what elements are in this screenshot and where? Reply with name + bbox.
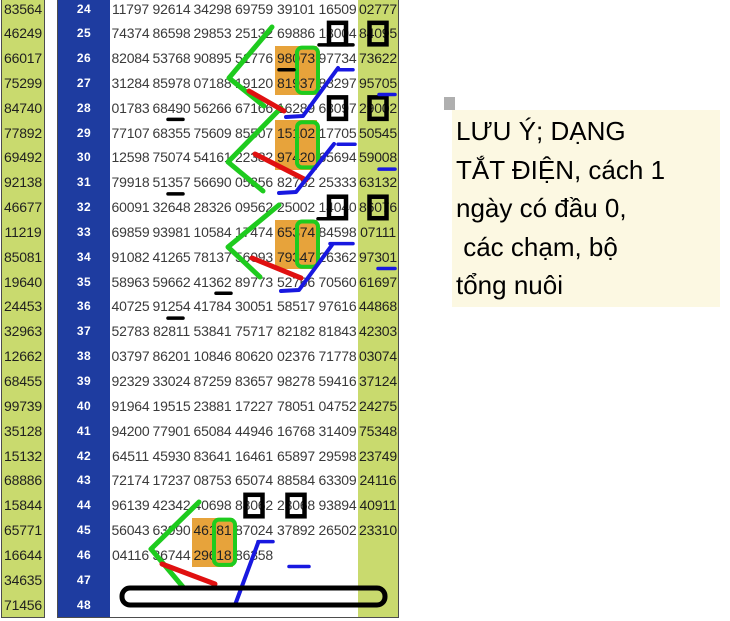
number-cell[interactable]: 72174 xyxy=(110,468,152,494)
row-header[interactable]: 35 xyxy=(57,269,111,295)
number-cell[interactable]: 84598 xyxy=(317,220,359,246)
number-cell[interactable]: 90895 xyxy=(192,46,234,72)
left-series-cell[interactable]: 11219 xyxy=(1,220,45,246)
note-line: LƯU Ý; DẠNG xyxy=(456,112,720,151)
number-cell[interactable]: 75717 xyxy=(233,319,276,345)
number-cell[interactable]: 04116 xyxy=(110,542,152,568)
number-cell[interactable]: 96139 xyxy=(110,493,152,519)
number-cell[interactable] xyxy=(233,592,276,618)
number-cell[interactable]: 88584 xyxy=(275,468,318,494)
number-cell[interactable]: 32648 xyxy=(151,195,193,221)
number-cell[interactable]: 17237 xyxy=(151,468,193,494)
number-cell[interactable]: 93981 xyxy=(151,220,193,246)
right-series-cell[interactable]: 75348 xyxy=(358,418,399,444)
number-cell[interactable]: 82084 xyxy=(110,46,152,72)
number-cell[interactable]: 28326 xyxy=(192,195,234,221)
number-cell[interactable]: 19120 xyxy=(233,71,276,97)
number-cell[interactable]: 23068 xyxy=(275,493,318,519)
left-series-cell[interactable]: 77892 xyxy=(1,120,45,146)
left-series-cell[interactable]: 24453 xyxy=(1,294,45,320)
number-cell[interactable]: 42342 xyxy=(151,493,193,519)
number-cell[interactable]: 33024 xyxy=(151,369,193,395)
gray-marker xyxy=(444,97,455,110)
number-cell[interactable]: 86201 xyxy=(151,344,193,370)
right-series-cell[interactable]: 40911 xyxy=(358,493,399,519)
left-series-cell[interactable]: 32963 xyxy=(1,319,45,345)
number-cell[interactable]: 37892 xyxy=(275,518,318,544)
number-cell[interactable]: 22382 xyxy=(233,145,276,171)
row-header[interactable]: 32 xyxy=(57,195,111,221)
number-cell[interactable]: 29853 xyxy=(192,21,234,47)
number-cell[interactable]: 97420 xyxy=(275,145,318,171)
number-cell[interactable]: 63309 xyxy=(317,468,359,494)
number-cell[interactable]: 83657 xyxy=(233,369,276,395)
number-cell[interactable]: 26502 xyxy=(317,518,359,544)
left-series-cell[interactable]: 84740 xyxy=(1,95,45,121)
left-series-cell[interactable]: 68455 xyxy=(1,369,45,395)
number-cell[interactable]: 86598 xyxy=(151,21,193,47)
number-cell[interactable]: 29598 xyxy=(317,443,359,469)
number-cell[interactable]: 29618 xyxy=(192,542,234,568)
number-cell[interactable]: 97734 xyxy=(317,46,359,72)
right-series-cell[interactable]: 73622 xyxy=(358,46,399,72)
number-cell[interactable]: 63990 xyxy=(151,518,193,544)
number-cell[interactable]: 16461 xyxy=(233,443,276,469)
number-cell[interactable]: 10584 xyxy=(192,220,234,246)
right-series-cell[interactable]: 63132 xyxy=(358,170,399,196)
row-header[interactable]: 39 xyxy=(57,369,111,395)
number-cell[interactable]: 53841 xyxy=(192,319,234,345)
right-series-cell[interactable]: 03074 xyxy=(358,344,399,370)
left-series-cell[interactable]: 15132 xyxy=(1,443,45,469)
row-header[interactable]: 42 xyxy=(57,443,111,469)
number-cell[interactable]: 94200 xyxy=(110,418,152,444)
row-header[interactable]: 48 xyxy=(57,592,111,618)
row-header[interactable]: 36 xyxy=(57,294,111,320)
number-cell[interactable] xyxy=(110,567,152,593)
number-cell[interactable]: 10846 xyxy=(192,344,234,370)
number-cell[interactable]: 51776 xyxy=(233,46,276,72)
number-cell[interactable]: 41265 xyxy=(151,244,193,270)
number-cell[interactable]: 64511 xyxy=(110,443,152,469)
number-cell[interactable]: 34298 xyxy=(192,0,234,22)
number-cell[interactable]: 91964 xyxy=(110,393,152,419)
number-cell[interactable]: 81937 xyxy=(275,71,318,97)
number-cell[interactable]: 82182 xyxy=(275,319,318,345)
number-cell[interactable]: 46181 xyxy=(192,518,234,544)
number-cell[interactable]: 40725 xyxy=(110,294,152,320)
number-cell[interactable]: 65897 xyxy=(275,443,318,469)
number-cell[interactable]: 98278 xyxy=(275,369,318,395)
number-cell[interactable]: 51357 xyxy=(151,170,193,196)
number-cell[interactable]: 91254 xyxy=(151,294,193,320)
number-cell[interactable]: 04752 xyxy=(317,393,359,419)
left-series-cell[interactable]: 19640 xyxy=(1,269,45,295)
number-cell[interactable]: 87024 xyxy=(233,518,276,544)
right-series-cell[interactable]: 50545 xyxy=(358,120,399,146)
number-cell[interactable]: 41362 xyxy=(192,269,234,295)
number-cell[interactable]: 93894 xyxy=(317,493,359,519)
number-cell[interactable] xyxy=(275,567,318,593)
number-cell[interactable]: 67166 xyxy=(233,95,276,121)
number-cell[interactable]: 68355 xyxy=(151,120,193,146)
number-cell[interactable] xyxy=(192,567,234,593)
number-cell[interactable]: 85978 xyxy=(151,71,193,97)
right-series-cell[interactable]: 59008 xyxy=(358,145,399,171)
left-series-cell[interactable]: 83564 xyxy=(1,0,45,22)
number-cell[interactable]: 26362 xyxy=(317,244,359,270)
number-cell[interactable]: 40698 xyxy=(192,493,234,519)
row-header[interactable]: 29 xyxy=(57,120,111,146)
left-series-cell[interactable]: 66017 xyxy=(1,46,45,72)
left-series-cell[interactable]: 75299 xyxy=(1,71,45,97)
row-header[interactable]: 47 xyxy=(57,567,111,593)
left-series-cell[interactable]: 69492 xyxy=(1,145,45,171)
row-header[interactable]: 28 xyxy=(57,95,111,121)
row-header[interactable]: 33 xyxy=(57,220,111,246)
row-header[interactable]: 31 xyxy=(57,170,111,196)
number-cell[interactable]: 23881 xyxy=(192,393,234,419)
left-series-cell[interactable]: 92138 xyxy=(1,170,45,196)
number-cell[interactable]: 69886 xyxy=(275,21,318,47)
number-cell[interactable]: 08753 xyxy=(192,468,234,494)
right-series-cell[interactable]: 02777 xyxy=(358,0,399,22)
right-series-cell[interactable]: 24275 xyxy=(358,393,399,419)
right-series-cell[interactable]: 23310 xyxy=(358,518,399,544)
number-cell[interactable]: 53768 xyxy=(151,46,193,72)
row-header[interactable]: 37 xyxy=(57,319,111,345)
number-cell[interactable]: 78137 xyxy=(192,244,234,270)
number-cell[interactable]: 75074 xyxy=(151,145,193,171)
number-cell[interactable]: 58963 xyxy=(110,269,152,295)
number-cell[interactable]: 69759 xyxy=(233,0,276,22)
number-cell[interactable] xyxy=(110,592,152,618)
number-cell[interactable]: 16509 xyxy=(317,0,359,22)
number-cell[interactable]: 86358 xyxy=(233,542,276,568)
left-series-cell[interactable]: 46677 xyxy=(1,195,45,221)
number-cell[interactable]: 82782 xyxy=(275,170,318,196)
number-cell[interactable]: 59416 xyxy=(317,369,359,395)
number-cell[interactable]: 92329 xyxy=(110,369,152,395)
right-series-cell[interactable]: 84095 xyxy=(358,21,399,47)
right-series-cell[interactable]: 29002 xyxy=(358,95,399,121)
left-series-cell[interactable]: 46249 xyxy=(1,21,45,47)
number-cell[interactable] xyxy=(317,567,359,593)
row-header[interactable]: 34 xyxy=(57,244,111,270)
row-header[interactable]: 44 xyxy=(57,493,111,519)
number-cell[interactable]: 19515 xyxy=(151,393,193,419)
right-series-cell[interactable]: 42303 xyxy=(358,319,399,345)
number-cell[interactable]: 65074 xyxy=(233,468,276,494)
number-cell[interactable]: 91082 xyxy=(110,244,152,270)
number-cell[interactable]: 58517 xyxy=(275,294,318,320)
number-cell[interactable]: 16289 xyxy=(275,95,318,121)
right-series-cell[interactable]: 37124 xyxy=(358,369,399,395)
row-header[interactable]: 45 xyxy=(57,518,111,544)
number-cell[interactable]: 88297 xyxy=(317,71,359,97)
left-series-cell[interactable]: 15844 xyxy=(1,493,45,519)
number-cell[interactable]: 16768 xyxy=(275,418,318,444)
number-cell[interactable]: 87259 xyxy=(192,369,234,395)
number-cell[interactable]: 65374 xyxy=(275,220,318,246)
number-cell[interactable]: 17705 xyxy=(317,120,359,146)
row-header[interactable]: 25 xyxy=(57,21,111,47)
number-cell[interactable] xyxy=(233,567,276,593)
number-cell[interactable]: 75609 xyxy=(192,120,234,146)
number-cell[interactable]: 79918 xyxy=(110,170,152,196)
right-series-cell[interactable]: 95705 xyxy=(358,71,399,97)
left-series-cell[interactable]: 68886 xyxy=(1,468,45,494)
number-cell[interactable] xyxy=(317,542,359,568)
number-cell[interactable]: 88062 xyxy=(233,493,276,519)
right-series-cell[interactable] xyxy=(358,592,399,618)
number-cell[interactable]: 79347 xyxy=(275,244,318,270)
number-cell[interactable]: 82811 xyxy=(151,319,193,345)
number-cell[interactable]: 12598 xyxy=(110,145,152,171)
right-series-cell[interactable]: 23749 xyxy=(358,443,399,469)
number-cell[interactable]: 25132 xyxy=(233,21,276,47)
row-header[interactable]: 27 xyxy=(57,71,111,97)
number-cell[interactable]: 14040 xyxy=(317,195,359,221)
number-cell[interactable]: 60091 xyxy=(110,195,152,221)
number-cell[interactable]: 44946 xyxy=(233,418,276,444)
left-series-cell[interactable]: 16644 xyxy=(1,542,45,568)
left-series-cell[interactable]: 12662 xyxy=(1,344,45,370)
number-cell[interactable]: 03797 xyxy=(110,344,152,370)
row-header[interactable]: 30 xyxy=(57,145,111,171)
number-cell[interactable]: 97616 xyxy=(317,294,359,320)
number-cell[interactable]: 30051 xyxy=(233,294,276,320)
row-header[interactable]: 43 xyxy=(57,468,111,494)
number-cell[interactable]: 41784 xyxy=(192,294,234,320)
number-cell[interactable]: 31284 xyxy=(110,71,152,97)
number-cell[interactable]: 39101 xyxy=(275,0,318,22)
number-cell[interactable]: 13004 xyxy=(317,21,359,47)
number-cell[interactable]: 98073 xyxy=(275,46,318,72)
note-box: LƯU Ý; DẠNG TẮT ĐIỆN, cách 1 ngày có đầu… xyxy=(452,110,720,307)
number-cell[interactable]: 31409 xyxy=(317,418,359,444)
number-cell[interactable] xyxy=(275,542,318,568)
number-cell[interactable]: 81843 xyxy=(317,319,359,345)
number-cell[interactable]: 54161 xyxy=(192,145,234,171)
number-cell[interactable]: 15102 xyxy=(275,120,318,146)
number-cell[interactable] xyxy=(275,592,318,618)
left-series-cell[interactable]: 34635 xyxy=(1,567,45,593)
left-series-cell[interactable]: 65771 xyxy=(1,518,45,544)
note-line: các chạm, bộ xyxy=(456,228,720,267)
number-cell[interactable]: 77901 xyxy=(151,418,193,444)
number-cell[interactable]: 52766 xyxy=(275,269,318,295)
number-cell[interactable]: 02376 xyxy=(275,344,318,370)
left-series-cell[interactable]: 35128 xyxy=(1,418,45,444)
annotated-spreadsheet: 8356424117979261434298697593910116509027… xyxy=(0,0,730,621)
number-cell[interactable]: 11797 xyxy=(110,0,152,22)
number-cell[interactable]: 89773 xyxy=(233,269,276,295)
left-series-cell[interactable]: 85081 xyxy=(1,244,45,270)
number-cell[interactable]: 45930 xyxy=(151,443,193,469)
note-line: tổng nuôi xyxy=(456,266,720,305)
number-cell[interactable]: 01783 xyxy=(110,95,152,121)
number-cell[interactable]: 52783 xyxy=(110,319,152,345)
number-cell[interactable] xyxy=(317,592,359,618)
number-cell[interactable]: 59662 xyxy=(151,269,193,295)
right-series-cell[interactable]: 24116 xyxy=(358,468,399,494)
number-cell[interactable]: 05356 xyxy=(233,170,276,196)
note-line: TẮT ĐIỆN, cách 1 xyxy=(456,151,720,190)
row-header[interactable]: 40 xyxy=(57,393,111,419)
number-cell[interactable]: 80620 xyxy=(233,344,276,370)
number-cell[interactable]: 74374 xyxy=(110,21,152,47)
number-cell[interactable]: 36744 xyxy=(151,542,193,568)
right-series-cell[interactable]: 07111 xyxy=(358,220,399,246)
row-header[interactable]: 38 xyxy=(57,344,111,370)
number-cell[interactable]: 71778 xyxy=(317,344,359,370)
number-cell[interactable]: 09562 xyxy=(233,195,276,221)
number-cell[interactable]: 56093 xyxy=(233,244,276,270)
number-cell[interactable]: 85507 xyxy=(233,120,276,146)
row-header[interactable]: 41 xyxy=(57,418,111,444)
number-cell[interactable]: 69859 xyxy=(110,220,152,246)
right-series-cell[interactable]: 44868 xyxy=(358,294,399,320)
number-cell[interactable]: 25333 xyxy=(317,170,359,196)
number-cell[interactable]: 25002 xyxy=(275,195,318,221)
right-series-cell[interactable] xyxy=(358,567,399,593)
number-cell[interactable]: 68490 xyxy=(151,95,193,121)
left-series-cell[interactable]: 71456 xyxy=(1,592,45,618)
number-cell[interactable]: 65084 xyxy=(192,418,234,444)
number-cell[interactable]: 17474 xyxy=(233,220,276,246)
number-cell[interactable]: 70560 xyxy=(317,269,359,295)
row-header[interactable]: 46 xyxy=(57,542,111,568)
number-cell[interactable]: 65694 xyxy=(317,145,359,171)
right-series-cell[interactable] xyxy=(358,542,399,568)
number-cell[interactable]: 63097 xyxy=(317,95,359,121)
number-cell[interactable]: 56690 xyxy=(192,170,234,196)
row-header[interactable]: 24 xyxy=(57,0,111,22)
number-cell[interactable] xyxy=(151,592,193,618)
number-cell[interactable]: 07188 xyxy=(192,71,234,97)
left-series-cell[interactable]: 99739 xyxy=(1,393,45,419)
number-cell[interactable]: 92614 xyxy=(151,0,193,22)
number-cell[interactable]: 83641 xyxy=(192,443,234,469)
number-cell[interactable] xyxy=(192,592,234,618)
row-header[interactable]: 26 xyxy=(57,46,111,72)
number-cell[interactable]: 78051 xyxy=(275,393,318,419)
number-cell[interactable]: 17227 xyxy=(233,393,276,419)
right-series-cell[interactable]: 61697 xyxy=(358,269,399,295)
number-cell[interactable] xyxy=(151,567,193,593)
note-line: ngày có đầu 0, xyxy=(456,189,720,228)
number-cell[interactable]: 56043 xyxy=(110,518,152,544)
number-cell[interactable]: 56266 xyxy=(192,95,234,121)
right-series-cell[interactable]: 97301 xyxy=(358,244,399,270)
number-cell[interactable]: 77107 xyxy=(110,120,152,146)
right-series-cell[interactable]: 86076 xyxy=(358,195,399,221)
